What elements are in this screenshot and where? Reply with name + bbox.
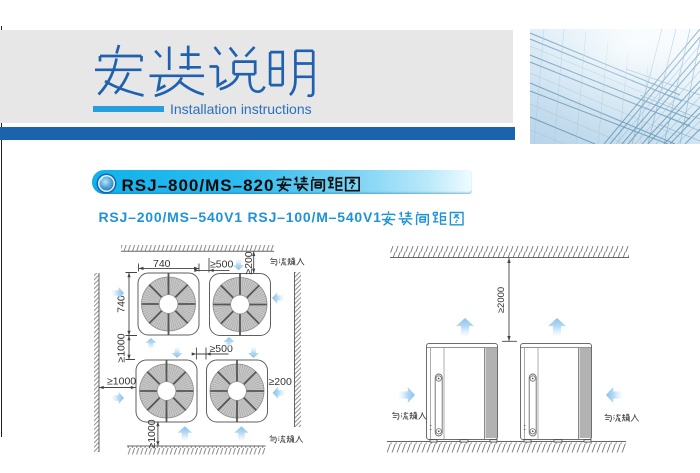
svg-text:740: 740 <box>116 295 128 313</box>
svg-text:≥2000: ≥2000 <box>496 287 507 313</box>
svg-text:≥200: ≥200 <box>269 376 292 388</box>
svg-text:≥1000: ≥1000 <box>146 419 158 448</box>
svg-text:≥1000: ≥1000 <box>107 375 136 387</box>
svg-text:≥1000: ≥1000 <box>116 333 128 362</box>
svg-text:740: 740 <box>153 258 171 270</box>
svg-text:≥500: ≥500 <box>210 259 233 271</box>
svg-text:≥200: ≥200 <box>243 251 255 274</box>
